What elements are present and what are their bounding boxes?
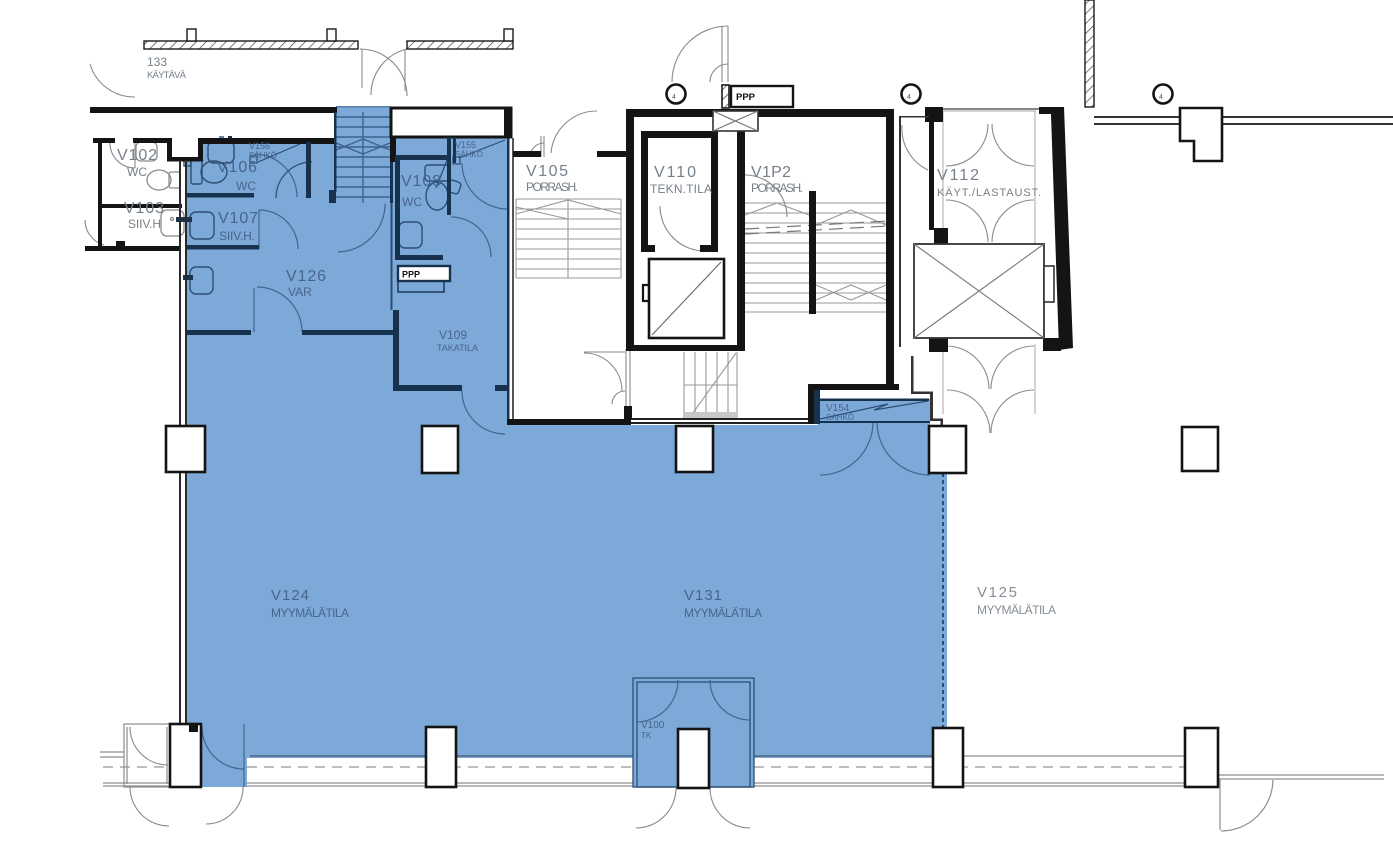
svg-text:V106: V106 xyxy=(217,159,257,176)
svg-text:VAR: VAR xyxy=(288,285,312,299)
svg-text:133: 133 xyxy=(147,55,167,69)
svg-text:V131: V131 xyxy=(684,587,722,604)
svg-text:V105: V105 xyxy=(526,163,568,180)
svg-text:PPP: PPP xyxy=(736,92,756,103)
svg-text:KÄYT./LASTAUST.: KÄYT./LASTAUST. xyxy=(937,187,1041,199)
svg-text:SÄHKÖ: SÄHKÖ xyxy=(826,413,854,422)
svg-text:SÄHKÖ: SÄHKÖ xyxy=(249,151,277,160)
svg-text:TK: TK xyxy=(641,731,652,740)
svg-text:PPP: PPP xyxy=(402,270,420,280)
svg-text:4: 4 xyxy=(672,94,676,101)
svg-text:4: 4 xyxy=(1159,94,1163,101)
svg-text:V125: V125 xyxy=(977,584,1017,601)
svg-text:SIIV.H.: SIIV.H. xyxy=(219,229,255,243)
svg-text:V124: V124 xyxy=(271,587,309,604)
svg-text:KÄYTÄVÄ: KÄYTÄVÄ xyxy=(147,70,187,81)
svg-text:SIIV.H: SIIV.H xyxy=(128,217,161,231)
svg-text:4: 4 xyxy=(907,94,911,101)
svg-text:WC: WC xyxy=(402,195,422,209)
svg-text:MYYMÄLÄTILA: MYYMÄLÄTILA xyxy=(271,606,349,620)
svg-text:SÄHKÖ: SÄHKÖ xyxy=(455,150,483,159)
svg-text:V108: V108 xyxy=(401,173,441,190)
svg-text:V126: V126 xyxy=(286,268,326,285)
svg-text:PORRASH.: PORRASH. xyxy=(751,181,803,195)
svg-text:V109: V109 xyxy=(439,328,467,342)
svg-text:PORRASH.: PORRASH. xyxy=(526,180,578,194)
svg-text:TEKN.TILA: TEKN.TILA xyxy=(650,182,712,196)
svg-text:WC: WC xyxy=(236,179,256,193)
svg-text:TAKATILA: TAKATILA xyxy=(437,343,478,353)
svg-text:V1P2: V1P2 xyxy=(751,164,791,181)
svg-text:V103: V103 xyxy=(124,200,164,217)
svg-text:V100: V100 xyxy=(641,720,665,731)
svg-text:V107: V107 xyxy=(218,210,258,227)
svg-text:WC: WC xyxy=(127,165,147,179)
svg-text:MYYMÄLÄTILA: MYYMÄLÄTILA xyxy=(977,603,1056,617)
svg-text:MYYMÄLÄTILA: MYYMÄLÄTILA xyxy=(684,606,762,620)
svg-text:V102: V102 xyxy=(117,147,157,164)
svg-text:V155: V155 xyxy=(455,140,476,150)
svg-text:V156: V156 xyxy=(249,141,270,151)
